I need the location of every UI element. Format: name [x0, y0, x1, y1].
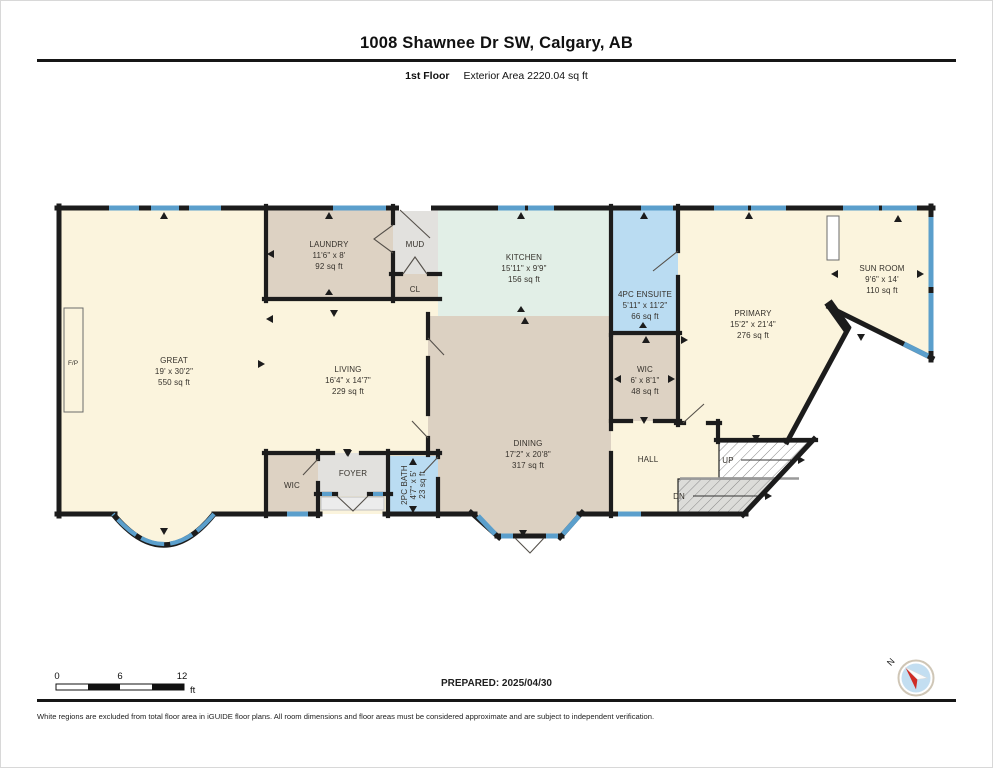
svg-text:5'11" x 11'2": 5'11" x 11'2" [623, 301, 668, 310]
svg-text:156 sq ft: 156 sq ft [508, 275, 541, 284]
svg-text:SUN ROOM: SUN ROOM [859, 264, 904, 273]
compass-icon: N [885, 656, 934, 695]
north-label: N [885, 656, 897, 668]
room-label-wic2: WIC [284, 481, 300, 490]
svg-text:229 sq ft: 229 sq ft [332, 387, 365, 396]
prepared-date: PREPARED: 2025/04/30 [1, 678, 992, 689]
room-label-great: GREAT 19' x 30'2" 550 sq ft [155, 356, 193, 387]
svg-text:KITCHEN: KITCHEN [506, 253, 542, 262]
room-label-hall: HALL [638, 455, 659, 464]
room-fills [59, 208, 931, 545]
svg-text:92 sq ft: 92 sq ft [315, 262, 343, 271]
stairs-up-label: UP [722, 456, 733, 465]
svg-text:9'6" x 14': 9'6" x 14' [865, 275, 899, 284]
svg-text:19' x 30'2": 19' x 30'2" [155, 367, 193, 376]
svg-text:48 sq ft: 48 sq ft [631, 387, 659, 396]
svg-text:LIVING: LIVING [334, 365, 361, 374]
svg-text:WIC: WIC [637, 365, 653, 374]
floorplan-drawing: GREAT 19' x 30'2" 550 sq ft LIVING 16'4"… [1, 1, 993, 768]
svg-text:16'4" x 14'7": 16'4" x 14'7" [325, 376, 371, 385]
svg-text:4'7" x 5': 4'7" x 5' [409, 470, 418, 499]
disclaimer-text: White regions are excluded from total fl… [37, 712, 956, 721]
svg-text:110 sq ft: 110 sq ft [866, 286, 898, 295]
room-label-mud: MUD [406, 240, 425, 249]
svg-text:66 sq ft: 66 sq ft [631, 312, 659, 321]
svg-text:17'2" x 20'8": 17'2" x 20'8" [505, 450, 551, 459]
svg-text:2PC BATH: 2PC BATH [400, 465, 409, 505]
svg-text:15'11" x 9'9": 15'11" x 9'9" [501, 264, 546, 273]
svg-text:LAUNDRY: LAUNDRY [309, 240, 349, 249]
svg-text:GREAT: GREAT [160, 356, 188, 365]
front-step [321, 497, 384, 510]
room-label-kitchen: KITCHEN 15'11" x 9'9" 156 sq ft [501, 253, 546, 284]
floorplan-page: 1008 Shawnee Dr SW, Calgary, AB 1st Floo… [0, 0, 993, 768]
sunroom-window-box [827, 216, 839, 260]
svg-text:6' x 8'1": 6' x 8'1" [630, 376, 659, 385]
svg-text:15'2" x 21'4": 15'2" x 21'4" [730, 320, 776, 329]
svg-text:276 sq ft: 276 sq ft [737, 331, 770, 340]
room-label-foyer: FOYER [339, 469, 367, 478]
room-label-closet: CL [410, 285, 421, 294]
svg-text:DINING: DINING [514, 439, 543, 448]
svg-text:PRIMARY: PRIMARY [734, 309, 772, 318]
stairs-down-label: DN [673, 492, 685, 501]
svg-text:4PC ENSUITE: 4PC ENSUITE [618, 290, 672, 299]
footer-rule [37, 699, 956, 702]
svg-text:317 sq ft: 317 sq ft [512, 461, 545, 470]
svg-text:11'6" x 8': 11'6" x 8' [312, 251, 345, 260]
svg-text:23 sq ft: 23 sq ft [418, 471, 427, 499]
fireplace-label: F/P [68, 360, 78, 367]
svg-text:550 sq ft: 550 sq ft [158, 378, 191, 387]
